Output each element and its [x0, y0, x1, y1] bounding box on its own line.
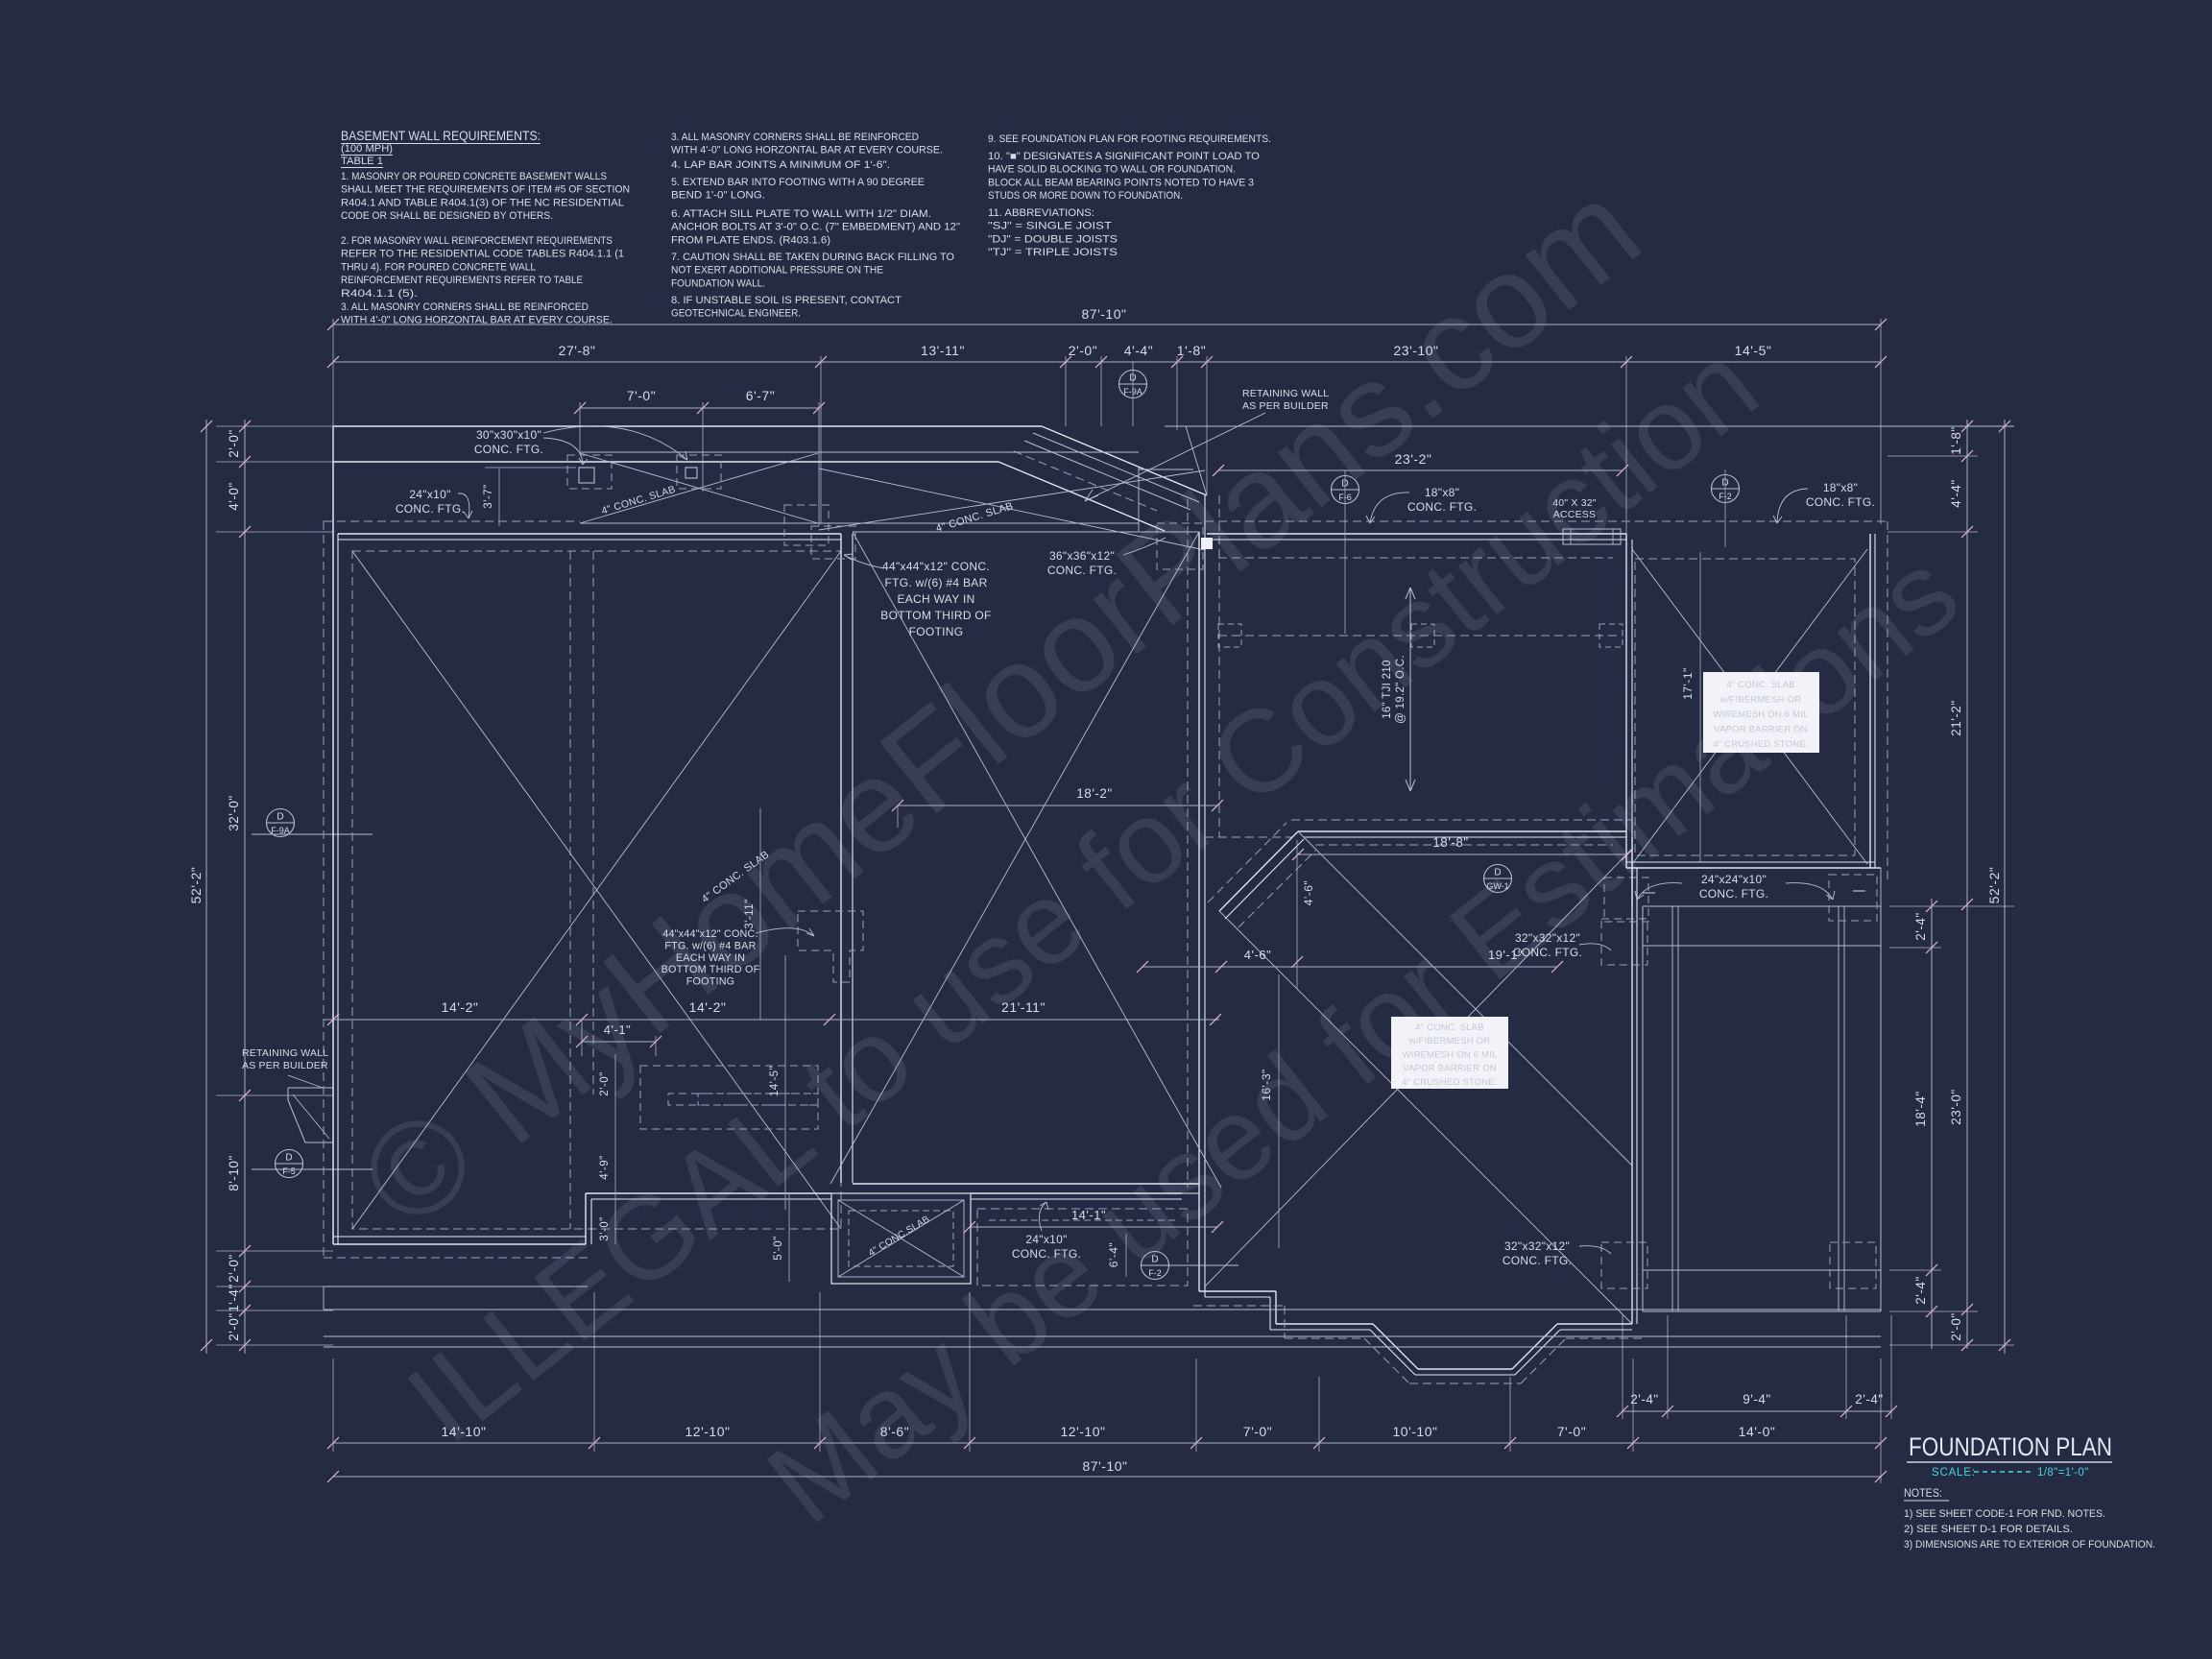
- svg-text:7. CAUTION SHALL BE TAKEN DURI: 7. CAUTION SHALL BE TAKEN DURING BACK FI…: [671, 252, 954, 263]
- svg-text:18'-2": 18'-2": [1076, 786, 1112, 801]
- svg-text:4'-1": 4'-1": [604, 1022, 631, 1037]
- svg-text:SHALL MEET THE REQUIREMENTS OF: SHALL MEET THE REQUIREMENTS OF ITEM #5 O…: [341, 184, 630, 196]
- svg-text:AS PER BUILDER: AS PER BUILDER: [1242, 400, 1329, 412]
- svg-text:WITH 4'-0" LONG HORZONTAL BAR: WITH 4'-0" LONG HORZONTAL BAR AT EVERY C…: [671, 145, 943, 156]
- svg-text:4" CONC. SLAB: 4" CONC. SLAB: [1415, 1022, 1483, 1033]
- svg-text:CONC. FTG.: CONC. FTG.: [396, 502, 465, 516]
- svg-text:32'-0": 32'-0": [227, 795, 241, 830]
- svg-text:FTG. w/(6) #4 BAR: FTG. w/(6) #4 BAR: [664, 940, 756, 951]
- svg-text:NOTES:: NOTES:: [1904, 1488, 1942, 1500]
- svg-text:32"x32"x12": 32"x32"x12": [1504, 1239, 1570, 1253]
- svg-text:2'-4": 2'-4": [1855, 1392, 1883, 1407]
- svg-text:36"x36"x12": 36"x36"x12": [1049, 549, 1115, 563]
- svg-text:CONC. FTG.: CONC. FTG.: [1806, 495, 1875, 509]
- svg-text:4'-4": 4'-4": [1124, 343, 1153, 358]
- svg-text:7'-0": 7'-0": [627, 388, 656, 403]
- svg-text:AS PER BUILDER: AS PER BUILDER: [242, 1060, 328, 1071]
- svg-text:12'-10": 12'-10": [685, 1424, 731, 1439]
- svg-text:3) DIMENSIONS ARE TO EXTERIOR: 3) DIMENSIONS ARE TO EXTERIOR OF FOUNDAT…: [1904, 1539, 2155, 1551]
- svg-text:GEOTECHNICAL ENGINEER.: GEOTECHNICAL ENGINEER.: [671, 308, 801, 320]
- svg-text:2'-0": 2'-0": [227, 1312, 241, 1340]
- svg-text:BOTTOM THIRD OF: BOTTOM THIRD OF: [661, 964, 760, 975]
- svg-text:2'-4": 2'-4": [1630, 1392, 1658, 1407]
- svg-text:14'-5": 14'-5": [1735, 343, 1772, 358]
- svg-text:4'-4": 4'-4": [1949, 479, 1963, 507]
- svg-text:D: D: [1151, 1255, 1158, 1265]
- svg-text:CONC. FTG.: CONC. FTG.: [1699, 887, 1768, 901]
- svg-text:GW-1: GW-1: [1486, 881, 1508, 891]
- svg-text:7'-0": 7'-0": [1557, 1424, 1586, 1439]
- svg-text:2. FOR MASONRY WALL REINFORCEM: 2. FOR MASONRY WALL REINFORCEMENT REQUIR…: [341, 235, 613, 247]
- svg-text:3'-11": 3'-11": [744, 899, 756, 928]
- svg-text:CONC. FTG.: CONC. FTG.: [1503, 1254, 1572, 1267]
- svg-text:FTG. w/(6) #4 BAR: FTG. w/(6) #4 BAR: [884, 576, 987, 589]
- svg-text:FOUNDATION PLAN: FOUNDATION PLAN: [1909, 1432, 2112, 1461]
- svg-text:14'-5": 14'-5": [769, 1066, 781, 1096]
- svg-text:FOUNDATION WALL.: FOUNDATION WALL.: [671, 277, 765, 289]
- svg-text:40" X 32": 40" X 32": [1552, 497, 1597, 509]
- svg-text:21'-2": 21'-2": [1949, 700, 1963, 735]
- svg-text:1'-4": 1'-4": [227, 1284, 241, 1311]
- svg-text:F-5: F-5: [282, 1166, 296, 1176]
- svg-text:CONC. FTG.: CONC. FTG.: [1407, 500, 1477, 514]
- svg-text:CONC. FTG.: CONC. FTG.: [1047, 564, 1117, 577]
- svg-text:CONC. FTG.: CONC. FTG.: [1012, 1247, 1081, 1261]
- svg-text:3'-0": 3'-0": [599, 1216, 611, 1240]
- svg-text:SCALE:: SCALE:: [1932, 1467, 1976, 1479]
- svg-text:TABLE 1: TABLE 1: [341, 156, 383, 167]
- svg-text:5'-0": 5'-0": [773, 1236, 784, 1260]
- svg-text:9'-4": 9'-4": [1743, 1392, 1770, 1407]
- svg-text:4" CONC. SLAB: 4" CONC. SLAB: [1726, 680, 1794, 690]
- svg-text:24"x10": 24"x10": [409, 488, 450, 501]
- svg-text:2) SEE SHEET D-1 FOR DETAILS.: 2) SEE SHEET D-1 FOR DETAILS.: [1904, 1524, 2073, 1535]
- svg-text:24"x24"x10": 24"x24"x10": [1701, 873, 1767, 886]
- svg-text:18"x8": 18"x8": [1823, 481, 1858, 494]
- svg-text:10. "■" DESIGNATES A SIGNIFICA: 10. "■" DESIGNATES A SIGNIFICANT POINT L…: [988, 151, 1260, 162]
- svg-text:3. ALL MASONRY CORNERS SHALL B: 3. ALL MASONRY CORNERS SHALL BE REINFORC…: [341, 301, 589, 313]
- svg-text:14'-0": 14'-0": [1739, 1424, 1776, 1439]
- svg-text:STUDS OR MORE DOWN TO FOUNDATI: STUDS OR MORE DOWN TO FOUNDATION.: [988, 190, 1183, 202]
- svg-text:4" CRUSHED STONE.: 4" CRUSHED STONE.: [1713, 739, 1809, 750]
- svg-text:44"x44"x12" CONC.: 44"x44"x12" CONC.: [882, 560, 990, 573]
- svg-text:6'-7": 6'-7": [746, 388, 775, 403]
- svg-text:RETAINING WALL: RETAINING WALL: [1242, 388, 1329, 399]
- svg-text:4" CRUSHED STONE.: 4" CRUSHED STONE.: [1402, 1077, 1498, 1088]
- svg-text:1. MASONRY OR POURED CONCRETE: 1. MASONRY OR POURED CONCRETE BASEMENT W…: [341, 171, 607, 182]
- svg-text:VAPOR BARRIER ON: VAPOR BARRIER ON: [1403, 1064, 1497, 1074]
- svg-text:8. IF UNSTABLE SOIL IS PRESENT: 8. IF UNSTABLE SOIL IS PRESENT, CONTACT: [671, 295, 902, 306]
- svg-text:8'-10": 8'-10": [227, 1155, 241, 1190]
- svg-text:"DJ" = DOUBLE JOISTS: "DJ" = DOUBLE JOISTS: [988, 233, 1118, 245]
- svg-text:(100 MPH): (100 MPH): [341, 143, 393, 155]
- svg-text:FOOTING: FOOTING: [909, 625, 964, 638]
- svg-text:4. LAP BAR JOINTS A MINIMUM OF: 4. LAP BAR JOINTS A MINIMUM OF 1'-6".: [671, 159, 890, 171]
- svg-text:BLOCK ALL BEAM BEARING POINTS: BLOCK ALL BEAM BEARING POINTS NOTED TO H…: [988, 177, 1254, 188]
- svg-text:F-9A: F-9A: [271, 826, 290, 835]
- svg-text:D: D: [285, 1153, 292, 1164]
- svg-text:4'-6": 4'-6": [1302, 880, 1315, 905]
- svg-text:ANCHOR BOLTS AT 3'-0" O.C. (7": ANCHOR BOLTS AT 3'-0" O.C. (7" EMBEDMENT…: [671, 222, 960, 233]
- svg-text:14'-1": 14'-1": [1071, 1208, 1106, 1222]
- svg-text:14'-10": 14'-10": [442, 1424, 487, 1439]
- svg-text:4'-9": 4'-9": [599, 1155, 611, 1179]
- svg-text:9. SEE FOUNDATION PLAN FOR FOO: 9. SEE FOUNDATION PLAN FOR FOOTING REQUI…: [988, 133, 1271, 145]
- svg-text:CONC. FTG.: CONC. FTG.: [474, 443, 543, 456]
- svg-text:23'-10": 23'-10": [1394, 343, 1439, 358]
- svg-text:F-2: F-2: [1148, 1268, 1162, 1278]
- svg-text:6'-4": 6'-4": [1107, 1242, 1120, 1267]
- svg-text:2'-4": 2'-4": [1913, 912, 1928, 940]
- svg-text:BEND 1'-0" LONG.: BEND 1'-0" LONG.: [671, 190, 765, 202]
- svg-text:REFER TO THE RESIDENTIAL CODE: REFER TO THE RESIDENTIAL CODE TABLES R40…: [341, 249, 624, 260]
- svg-text:17'-1": 17'-1": [1681, 667, 1695, 700]
- svg-text:WIREMESH ON 6 MIL: WIREMESH ON 6 MIL: [1403, 1049, 1498, 1060]
- svg-text:REINFORCEMENT REQUIREMENTS REF: REINFORCEMENT REQUIREMENTS REFER TO TABL…: [341, 275, 583, 286]
- svg-text:1'-8": 1'-8": [1949, 426, 1963, 454]
- svg-text:14'-2": 14'-2": [689, 999, 727, 1015]
- svg-text:11. ABBREVIATIONS:: 11. ABBREVIATIONS:: [988, 207, 1094, 219]
- svg-text:2'-4": 2'-4": [1913, 1276, 1928, 1304]
- svg-text:R404.1 AND TABLE R404.1(3) OF: R404.1 AND TABLE R404.1(3) OF THE NC RES…: [341, 197, 624, 208]
- svg-text:3. ALL MASONRY CORNERS SHALL B: 3. ALL MASONRY CORNERS SHALL BE REINFORC…: [671, 132, 919, 143]
- svg-text:BOTTOM THIRD OF: BOTTOM THIRD OF: [880, 609, 991, 622]
- svg-text:BASEMENT WALL REQUIREMENTS:: BASEMENT WALL REQUIREMENTS:: [341, 129, 541, 143]
- svg-text:1'-8": 1'-8": [1177, 343, 1206, 358]
- svg-text:NOT EXERT ADDITIONAL PRESSURE: NOT EXERT ADDITIONAL PRESSURE ON THE: [671, 265, 883, 276]
- svg-text:"TJ" = TRIPLE JOISTS: "TJ" = TRIPLE JOISTS: [988, 247, 1118, 258]
- svg-text:30"x30"x10": 30"x30"x10": [476, 428, 541, 442]
- svg-text:18'-4": 18'-4": [1913, 1091, 1928, 1126]
- svg-text:16" TJI 210: 16" TJI 210: [1382, 660, 1393, 719]
- svg-text:RETAINING WALL: RETAINING WALL: [242, 1047, 328, 1059]
- svg-text:44"x44"x12" CONC.: 44"x44"x12" CONC.: [662, 928, 758, 940]
- svg-text:18'-8": 18'-8": [1432, 835, 1468, 850]
- svg-text:12'-10": 12'-10": [1061, 1424, 1106, 1439]
- svg-text:13'-11": 13'-11": [921, 343, 965, 358]
- svg-text:87'-10": 87'-10": [1083, 1458, 1128, 1474]
- svg-text:23'-2": 23'-2": [1395, 451, 1432, 467]
- svg-text:52'-2": 52'-2": [1986, 867, 2002, 904]
- svg-text:FOOTING: FOOTING: [686, 976, 735, 988]
- svg-text:w/FIBERMESH OR: w/FIBERMESH OR: [1408, 1036, 1491, 1046]
- svg-text:EACH WAY IN: EACH WAY IN: [676, 952, 745, 964]
- svg-text:4'-6": 4'-6": [1244, 948, 1271, 962]
- svg-text:24"x10": 24"x10": [1025, 1233, 1067, 1246]
- svg-text:VAPOR BARRIER ON: VAPOR BARRIER ON: [1714, 725, 1808, 735]
- svg-text:EACH WAY IN: EACH WAY IN: [897, 592, 974, 606]
- svg-text:2'-0": 2'-0": [227, 429, 241, 457]
- svg-text:52'-2": 52'-2": [188, 867, 204, 904]
- svg-text:21'-11": 21'-11": [1001, 999, 1046, 1015]
- svg-text:D: D: [1494, 868, 1501, 878]
- svg-text:2'-0": 2'-0": [1069, 343, 1097, 358]
- svg-text:WIREMESH ON 6 MIL: WIREMESH ON 6 MIL: [1714, 709, 1809, 720]
- svg-text:23'-0": 23'-0": [1949, 1089, 1963, 1124]
- svg-text:w/FIBERMESH OR: w/FIBERMESH OR: [1719, 695, 1802, 706]
- svg-text:1/8"=1'-0": 1/8"=1'-0": [2037, 1467, 2089, 1479]
- svg-text:4" CONC.SLAB: 4" CONC.SLAB: [867, 1214, 932, 1260]
- svg-text:CONC. FTG.: CONC. FTG.: [1513, 946, 1582, 959]
- svg-text:7'-0": 7'-0": [1243, 1424, 1272, 1439]
- svg-text:2'-0": 2'-0": [227, 1254, 241, 1282]
- svg-text:32"x32"x12": 32"x32"x12": [1515, 931, 1580, 945]
- svg-text:4'-0": 4'-0": [227, 482, 241, 510]
- svg-text:8'-6": 8'-6": [880, 1424, 909, 1439]
- svg-text:ACCESS: ACCESS: [1553, 509, 1596, 520]
- svg-text:1) SEE SHEET CODE-1 FOR FND.: 1) SEE SHEET CODE-1 FOR FND. NOTES.: [1904, 1508, 2105, 1520]
- svg-text:18"x8": 18"x8": [1425, 486, 1459, 499]
- svg-text:2'-0": 2'-0": [599, 1071, 611, 1095]
- svg-text:5. EXTEND BAR INTO FOOTING WIT: 5. EXTEND BAR INTO FOOTING WITH A 90 DEG…: [671, 177, 925, 188]
- svg-text:D: D: [276, 812, 283, 823]
- svg-text:"SJ" = SINGLE JOIST: "SJ" = SINGLE JOIST: [988, 221, 1112, 232]
- svg-text:27'-8": 27'-8": [559, 343, 596, 358]
- svg-text:FROM PLATE ENDS. (R403.1.6): FROM PLATE ENDS. (R403.1.6): [671, 234, 830, 246]
- svg-text:CODE OR SHALL BE DESIGNED BY O: CODE OR SHALL BE DESIGNED BY OTHERS.: [341, 210, 553, 222]
- svg-text:THRU 4). FOR POURED CONCRETE W: THRU 4). FOR POURED CONCRETE WALL: [341, 261, 536, 273]
- svg-text:3'-7": 3'-7": [483, 484, 494, 508]
- svg-text:2'-0": 2'-0": [1949, 1312, 1963, 1340]
- svg-text:HAVE SOLID BLOCKING TO WALL OR: HAVE SOLID BLOCKING TO WALL OR FOUNDATIO…: [988, 164, 1236, 176]
- svg-text:87'-10": 87'-10": [1082, 306, 1127, 322]
- svg-text:16'-3": 16'-3": [1260, 1069, 1273, 1101]
- svg-text:14'-2": 14'-2": [442, 999, 479, 1015]
- svg-text:R404.1.1 (5).: R404.1.1 (5).: [341, 288, 418, 300]
- svg-text:10'-10": 10'-10": [1393, 1424, 1438, 1439]
- svg-text:6. ATTACH SILL PLATE TO WALL W: 6. ATTACH SILL PLATE TO WALL WITH 1/2" D…: [671, 208, 931, 220]
- svg-text:@ 19.2" O.C.: @ 19.2" O.C.: [1395, 655, 1407, 724]
